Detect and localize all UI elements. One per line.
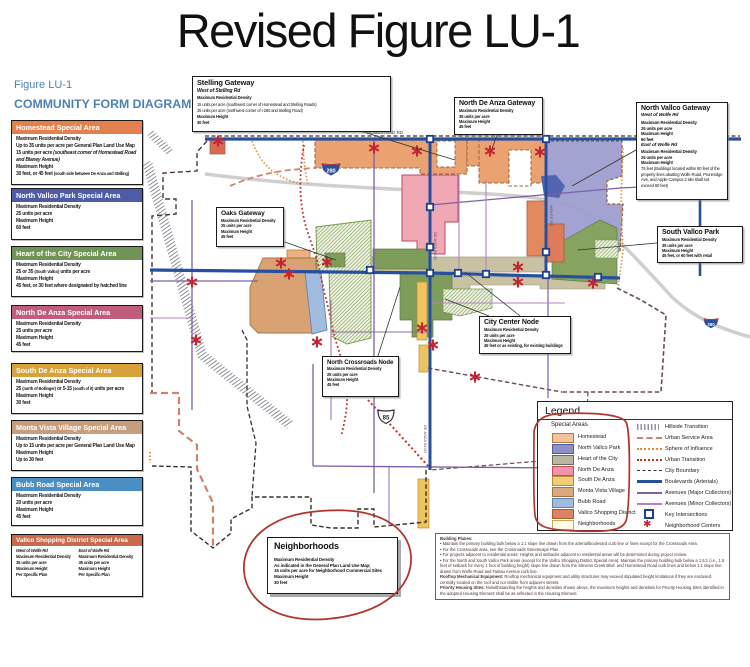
svg-text:DE ANZA BLVD: DE ANZA BLVD	[423, 425, 428, 453]
svg-text:WOLFE RD: WOLFE RD	[549, 205, 554, 226]
svg-text:85: 85	[383, 416, 390, 422]
